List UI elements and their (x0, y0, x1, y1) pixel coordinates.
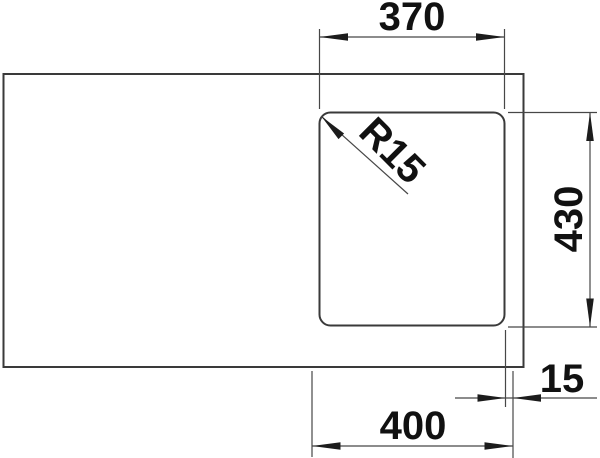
technical-drawing: 370 430 R15 15 (0, 0, 600, 458)
dimension-corner-radius: R15 (322, 109, 434, 194)
cutout-width-label: 400 (380, 404, 447, 448)
drawing-canvas: 370 430 R15 15 (0, 0, 600, 458)
corner-radius-label: R15 (351, 109, 434, 192)
bowl-height-label: 430 (547, 186, 591, 253)
arrowhead-up (586, 113, 594, 142)
arrowhead-toward-left (513, 394, 541, 402)
arrowhead-right (485, 442, 514, 450)
edge-offset-label: 15 (540, 357, 585, 401)
dimension-cutout-width: 400 (312, 371, 513, 457)
arrowhead-right (476, 33, 505, 41)
bowl-width-label: 370 (379, 0, 446, 39)
arrowhead-left (320, 33, 349, 41)
arrowhead-toward-right (478, 394, 506, 402)
dimension-bowl-width: 370 (320, 0, 505, 109)
dimension-edge-offset: 15 (455, 330, 597, 458)
arrowhead-down (586, 299, 594, 328)
arrowhead-left (312, 442, 341, 450)
arrowhead-corner (322, 117, 345, 140)
dimension-bowl-height: 430 (508, 113, 597, 328)
worktop-outline (4, 74, 524, 367)
